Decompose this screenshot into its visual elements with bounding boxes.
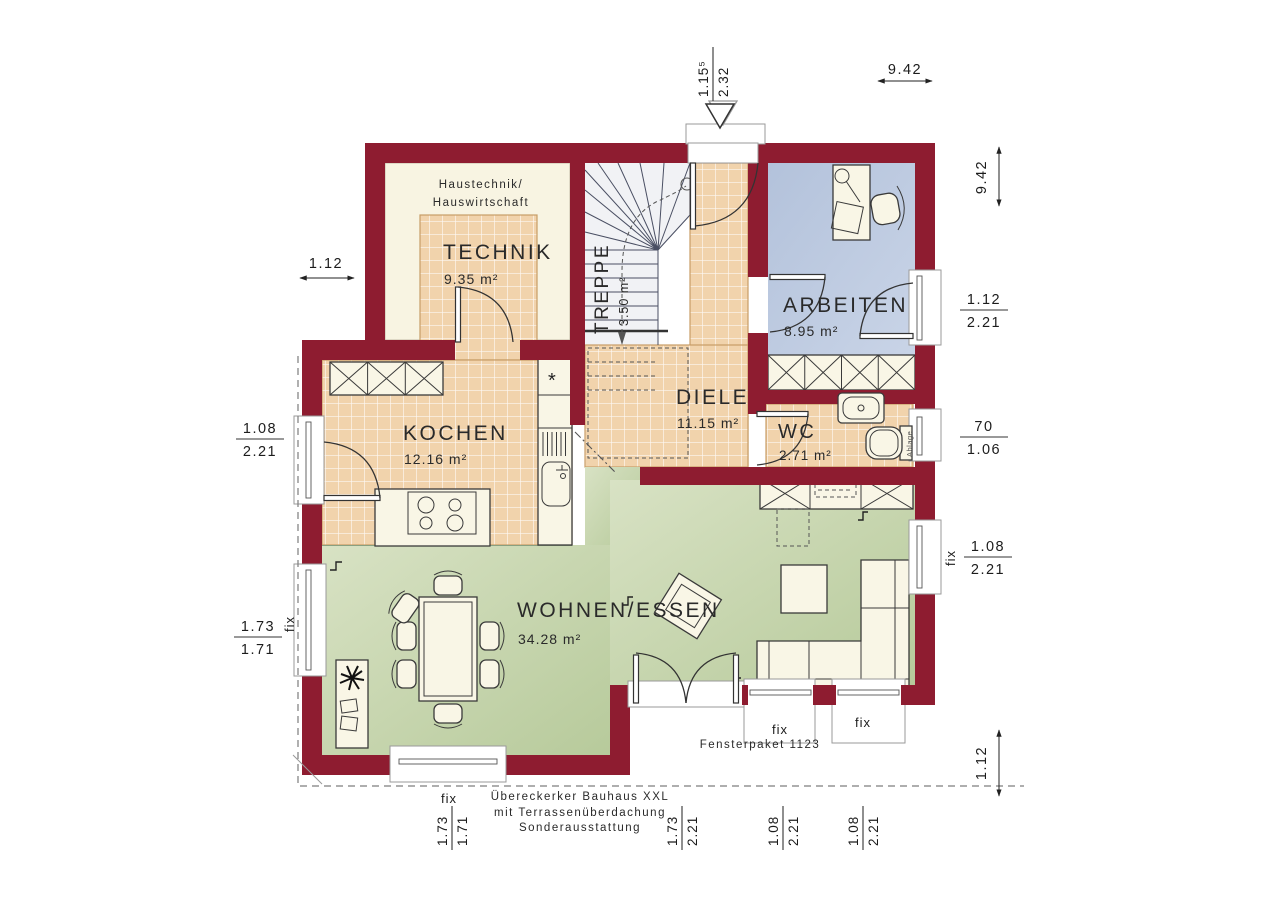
room-label-wc: WC <box>778 421 816 443</box>
arbeiten-window-leaf <box>860 334 913 339</box>
terrace-door-leaf-right <box>734 655 739 703</box>
footer-line2: mit Terrassenüberdachung <box>494 807 666 819</box>
dim-right-height: 9.42 <box>974 147 999 206</box>
fridge-icon: * <box>548 370 556 392</box>
kochen-wardrobe <box>330 362 443 395</box>
dim-right-window-wohnen: fix 1.08 2.21 <box>943 539 1012 578</box>
dim-entry-door: 1.15⁵ 2.32 <box>696 47 731 101</box>
dim-right-window-wc: 70 1.06 <box>960 419 1008 458</box>
dim-bottom-window-left: fix 1.73 1.71 <box>435 791 470 850</box>
svg-text:1.71: 1.71 <box>455 816 470 846</box>
wc-sink-icon <box>838 393 884 423</box>
svg-text:1.08: 1.08 <box>971 539 1005 555</box>
technik-door-leaf <box>456 287 461 342</box>
svg-text:fix: fix <box>282 616 297 632</box>
kochen-island <box>375 489 490 546</box>
room-label-arbeiten: ARBEITEN <box>783 294 908 317</box>
svg-text:1.08: 1.08 <box>243 421 277 437</box>
entrance-door-leaf <box>691 163 696 229</box>
kochen-door-leaf <box>324 496 380 501</box>
kochen-counter: * <box>538 355 572 545</box>
svg-text:2.21: 2.21 <box>971 562 1005 578</box>
floor-plan-page: * <box>0 0 1280 906</box>
entrance-porch <box>686 124 765 144</box>
room-label-kochen: KOCHEN <box>403 422 508 445</box>
dining-table <box>419 597 477 701</box>
wc-door-leaf <box>757 412 808 417</box>
dim-left-window-wohnen: 1.73 1.71 fix <box>234 616 297 658</box>
room-label-diele: DIELE <box>676 386 749 409</box>
dim-left-upper: 1.12 <box>300 256 354 278</box>
svg-text:1.08: 1.08 <box>846 816 861 846</box>
terrace-door-leaf-left <box>634 655 639 703</box>
room-area-wohnen: 34.28 m² <box>518 631 581 647</box>
svg-text:1.71: 1.71 <box>241 642 275 658</box>
svg-text:fix: fix <box>943 550 958 566</box>
svg-text:1.73: 1.73 <box>665 816 680 846</box>
dim-right-window-arbeiten: 1.12 2.21 <box>960 292 1008 331</box>
room-technik-tile <box>420 215 537 360</box>
footer-line1: Übereckerker Bauhaus XXL <box>491 791 670 803</box>
room-label-wohnen: WOHNEN/ESSEN <box>517 599 720 622</box>
svg-text:2.32: 2.32 <box>716 67 731 97</box>
fensterpaket-label: Fensterpaket 1123 <box>700 739 821 751</box>
arbeiten-door-leaf <box>770 275 825 280</box>
entrance-opening <box>688 143 758 163</box>
dim-bottom-terrace-door: 1.73 2.21 <box>665 806 700 850</box>
arbeiten-wardrobe <box>768 355 915 390</box>
svg-text:1.06: 1.06 <box>967 442 1001 458</box>
dim-left-door-kochen: 1.08 2.21 <box>236 421 284 460</box>
terrace-door <box>628 681 744 707</box>
svg-text:1.12: 1.12 <box>309 256 343 272</box>
room-area-treppe: 3.50 m² <box>617 277 631 326</box>
svg-text:fix: fix <box>441 791 457 806</box>
svg-text:2.21: 2.21 <box>866 816 881 846</box>
svg-text:1.73: 1.73 <box>435 816 450 846</box>
room-label-technik: TECHNIK <box>443 241 553 264</box>
room-area-arbeiten: 8.95 m² <box>784 323 838 339</box>
svg-text:1.12: 1.12 <box>974 746 990 780</box>
coffee-table <box>781 565 827 613</box>
window-bottom-right <box>832 679 905 743</box>
svg-text:9.42: 9.42 <box>974 160 990 194</box>
room-area-kochen: 12.16 m² <box>404 451 467 467</box>
svg-text:2.21: 2.21 <box>685 816 700 846</box>
svg-text:1.73: 1.73 <box>241 619 275 635</box>
svg-text:2.21: 2.21 <box>967 315 1001 331</box>
footer-line3: Sonderausstattung <box>519 822 641 834</box>
room-area-wc: 2.71 m² <box>779 448 832 463</box>
window-wohnen-fix <box>909 520 941 594</box>
svg-text:fix: fix <box>772 722 788 737</box>
room-area-technik: 9.35 m² <box>444 271 498 287</box>
room-label-treppe: TREPPE <box>592 243 613 334</box>
wc-shelf-label: Ablage <box>905 431 914 457</box>
svg-text:70: 70 <box>974 419 993 435</box>
svg-text:fix: fix <box>855 715 871 730</box>
floor-plan-svg: * <box>0 0 1280 906</box>
svg-text:1.15⁵: 1.15⁵ <box>696 60 711 97</box>
svg-text:1.08: 1.08 <box>766 816 781 846</box>
room-area-diele: 11.15 m² <box>677 415 739 431</box>
svg-text:2.21: 2.21 <box>786 816 801 846</box>
technik-note-line1: Haustechnik/ <box>439 179 523 191</box>
svg-text:1.12: 1.12 <box>967 292 1001 308</box>
desk <box>831 165 870 240</box>
plant-shelf <box>336 660 368 748</box>
svg-text:9.42: 9.42 <box>888 62 922 78</box>
window-arbeiten <box>909 270 941 345</box>
svg-text:2.21: 2.21 <box>243 444 277 460</box>
dim-top-width: 9.42 <box>878 62 932 81</box>
technik-note-line2: Hauswirtschaft <box>433 197 529 209</box>
